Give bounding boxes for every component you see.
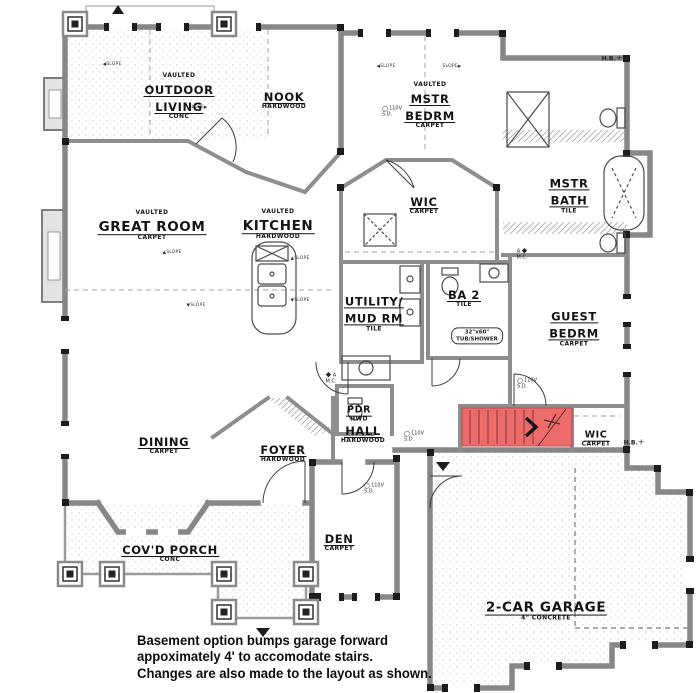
floor-plan: VAULTED OUTDOOR LIVING CONC NOOK HARDWOO… [0,0,700,693]
smoke-detector-marker: ○110VS.D. [382,106,402,119]
room-label-outdoor-living: VAULTED OUTDOOR LIVING CONC [143,73,214,121]
hose-bib-icon: + [638,438,645,447]
roof-slope-marker: SLOPE▸ [442,62,461,70]
room-label-nook: NOOK HARDWOOD [262,87,306,111]
room-label-pdr: PDR HWD [346,399,372,424]
room-label-den: DEN CARPET [324,529,355,553]
room-label-utility-mud-rm: UTILITY/ MUD RM TILE [344,291,404,332]
roof-slope-marker: ▾SLOPE [290,296,309,304]
roof-slope-marker: ◂SLOPE [102,60,121,68]
medicine-cabinet-marker: ◆ AM.C. [326,371,337,384]
roof-slope-marker: ▴SLOPE [290,254,309,262]
room-label-ba2: BA 2 TILE [447,285,481,309]
hose-bib-icon: + [616,54,623,63]
basement-option-caption: Basement option bumps garage forward app… [137,633,438,682]
room-label-foyer: FOYER HARDWOOD [259,440,306,464]
room-label-mstr-bedrm: VAULTED MSTR BEDRM CARPET [404,82,455,130]
room-label-kitchen: VAULTED KITCHEN HARDWOOD [242,209,315,241]
room-label-hall: HALL HARDWOOD [341,421,385,445]
room-label-wic-master: WIC CARPET [409,192,438,216]
room-label-dining: DINING CARPET [138,432,190,456]
hose-bib-marker: H.B.+ [602,54,623,63]
smoke-detector-marker: ○110VS.D. [404,431,424,444]
medicine-cabinet-marker: A ◆M.C. [517,247,528,260]
room-label-garage: 2-CAR GARAGE 4" CONCRETE [485,598,607,623]
room-label-wic-hall: WIC CARPET [582,424,611,449]
stairs-highlight [462,408,572,446]
floor-textures [65,27,690,688]
roof-slope-marker: ◂SLOPE [376,62,395,70]
slope-arrow-icon: ▸ [458,62,462,70]
hose-bib-marker: H.B.+ [624,438,645,447]
room-label-mstr-bath: MSTR BATH TILE [549,173,590,214]
room-label-guest-bedrm: GUEST BEDRM CARPET [548,306,599,347]
smoke-detector-marker: ○110VS.D. [517,378,537,391]
roof-slope-marker: ▴SLOPE [162,248,181,256]
room-label-great-room: VAULTED GREAT ROOM CARPET [98,210,207,242]
smoke-detector-marker: ○110VS.D. [364,483,384,496]
roof-slope-marker: ▾SLOPE [186,301,205,309]
room-label-covd-porch: COV'D PORCH CONC [121,540,219,564]
tub-shower-note: 32"x60" TUB/SHOWER [451,327,503,344]
